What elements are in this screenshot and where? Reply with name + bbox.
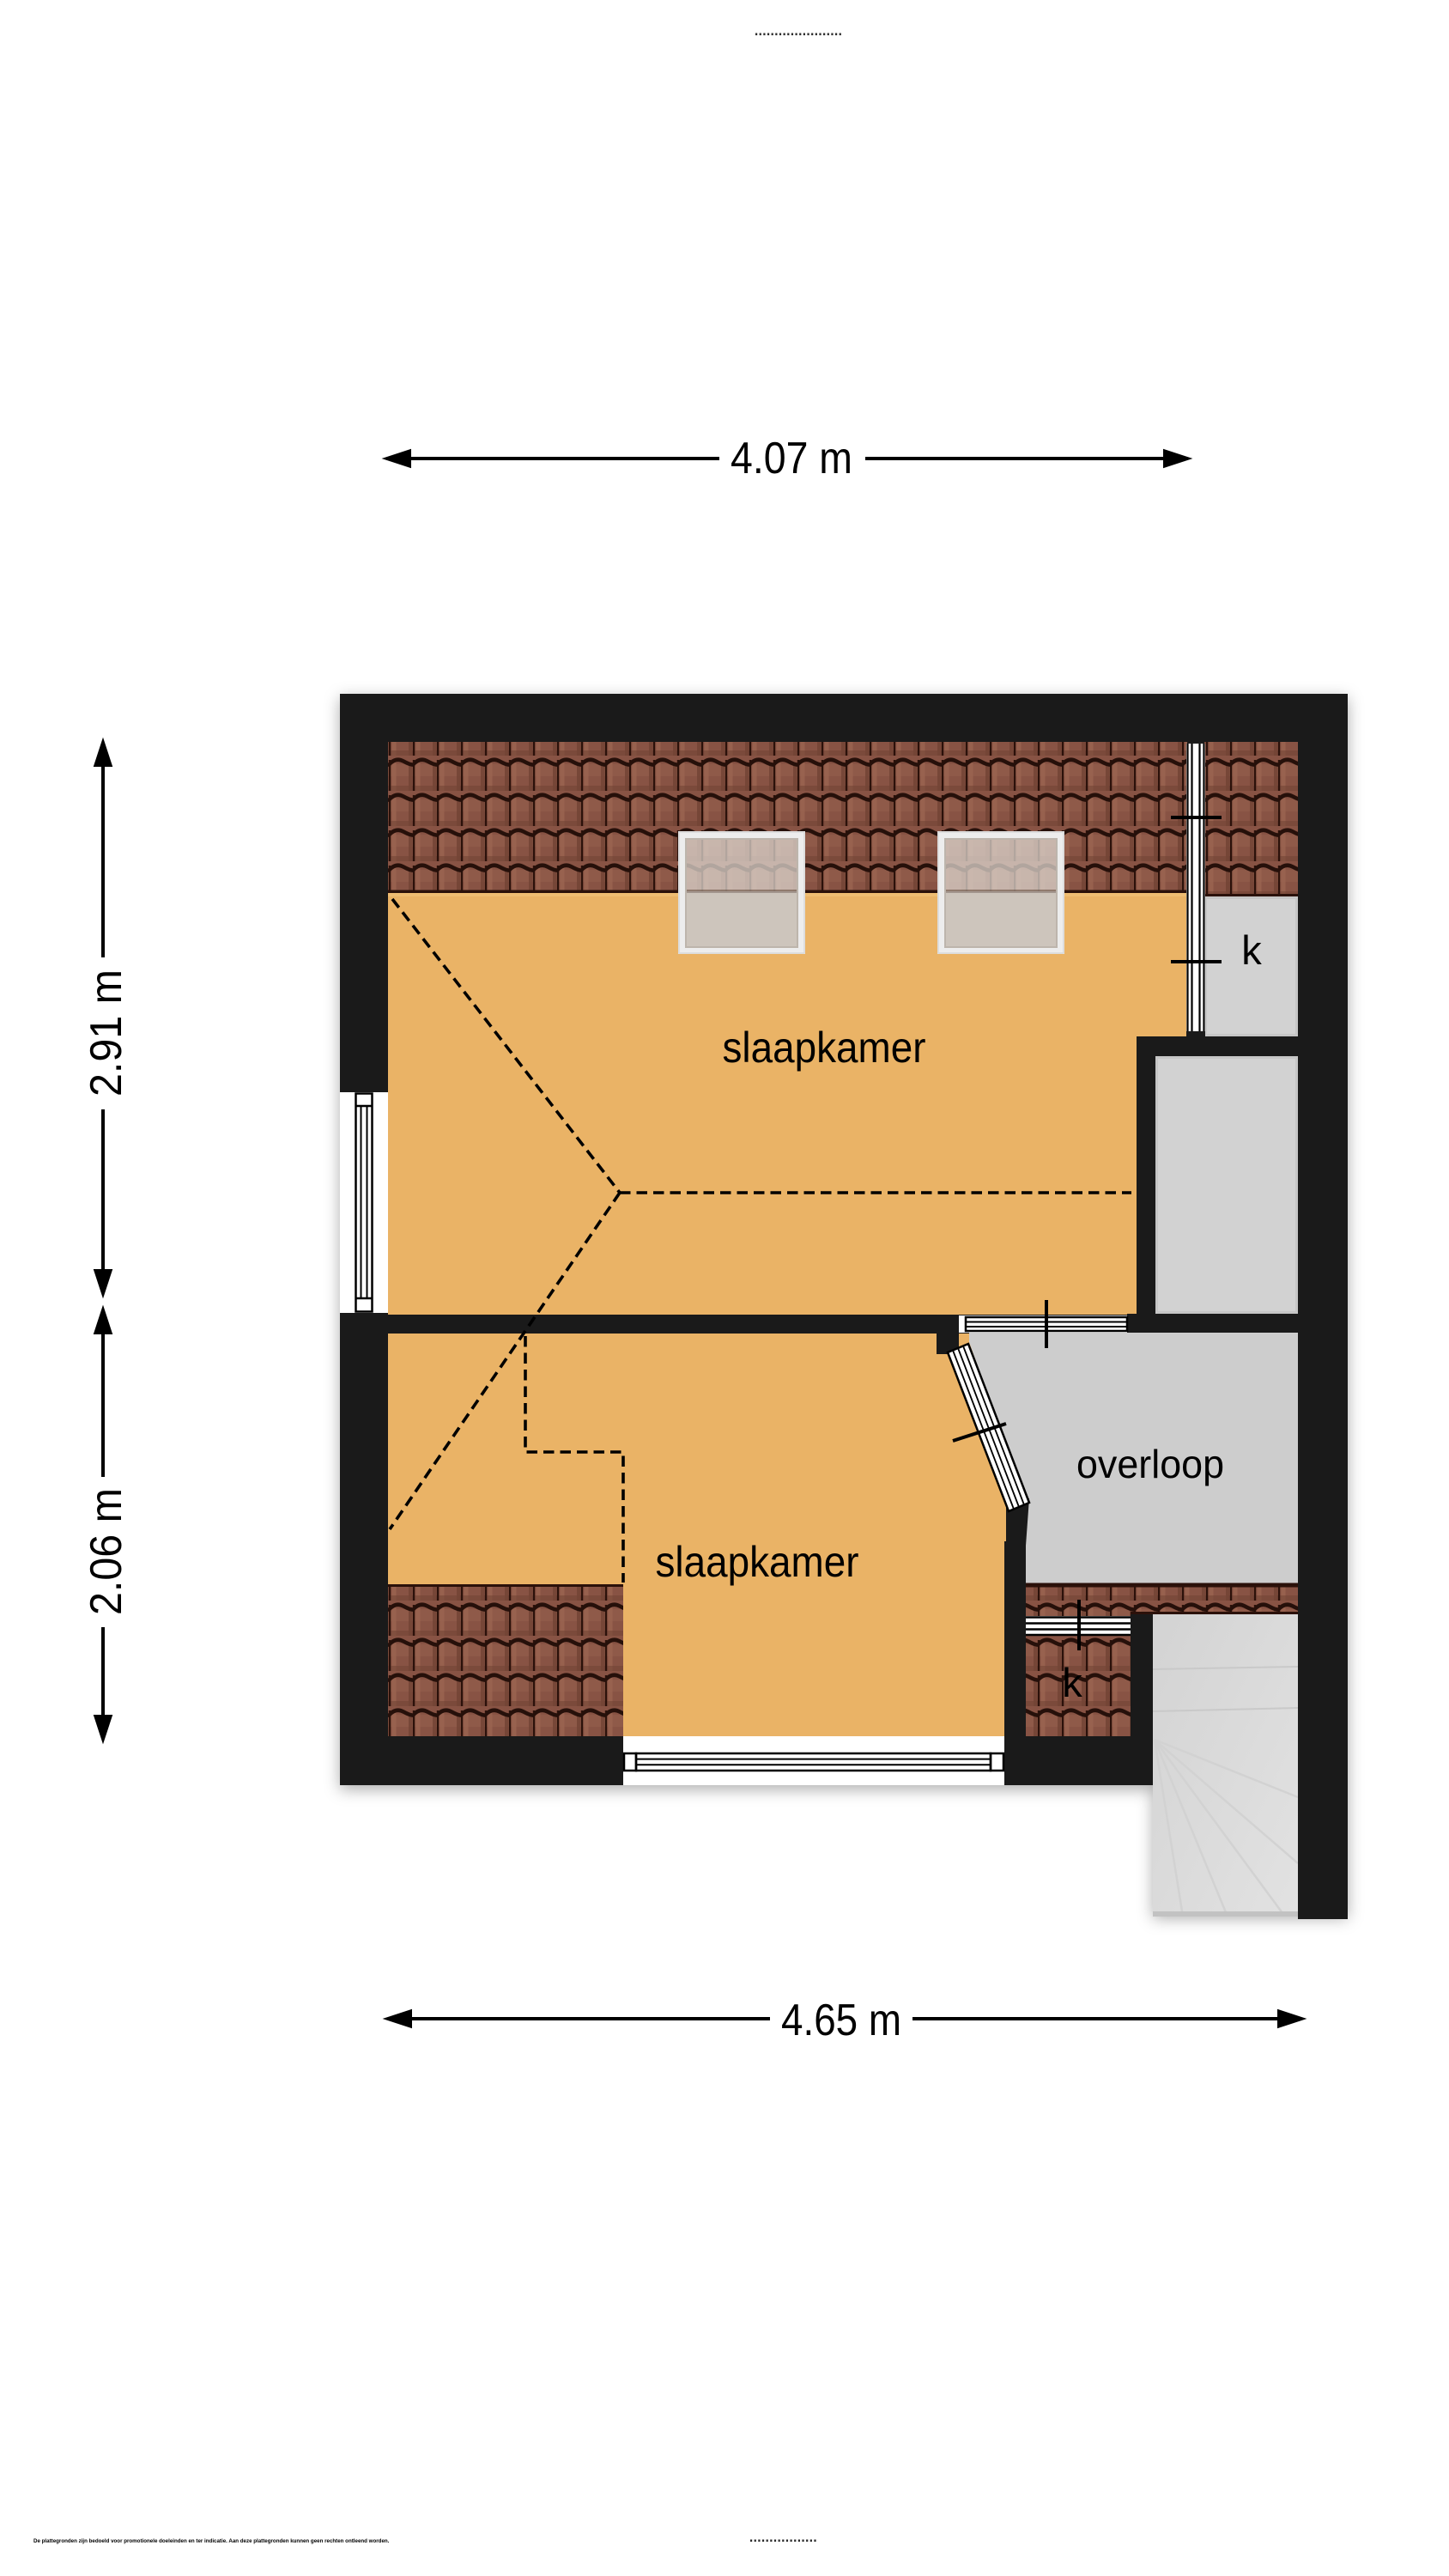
svg-text:slaapkamer: slaapkamer — [723, 1024, 926, 1072]
svg-text:k: k — [1062, 1660, 1082, 1705]
svg-text:De plattegronden zijn bedoeld: De plattegronden zijn bedoeld voor promo… — [33, 2538, 390, 2544]
svg-text:4.65 m: 4.65 m — [781, 1996, 901, 2045]
svg-text:k: k — [1241, 927, 1262, 973]
svg-text:2.06 m: 2.06 m — [82, 1488, 131, 1615]
svg-text:4.07 m: 4.07 m — [731, 434, 852, 483]
svg-text:2.91 m: 2.91 m — [82, 969, 131, 1097]
svg-text:slaapkamer: slaapkamer — [656, 1538, 859, 1586]
svg-text:overloop: overloop — [1076, 1442, 1224, 1486]
